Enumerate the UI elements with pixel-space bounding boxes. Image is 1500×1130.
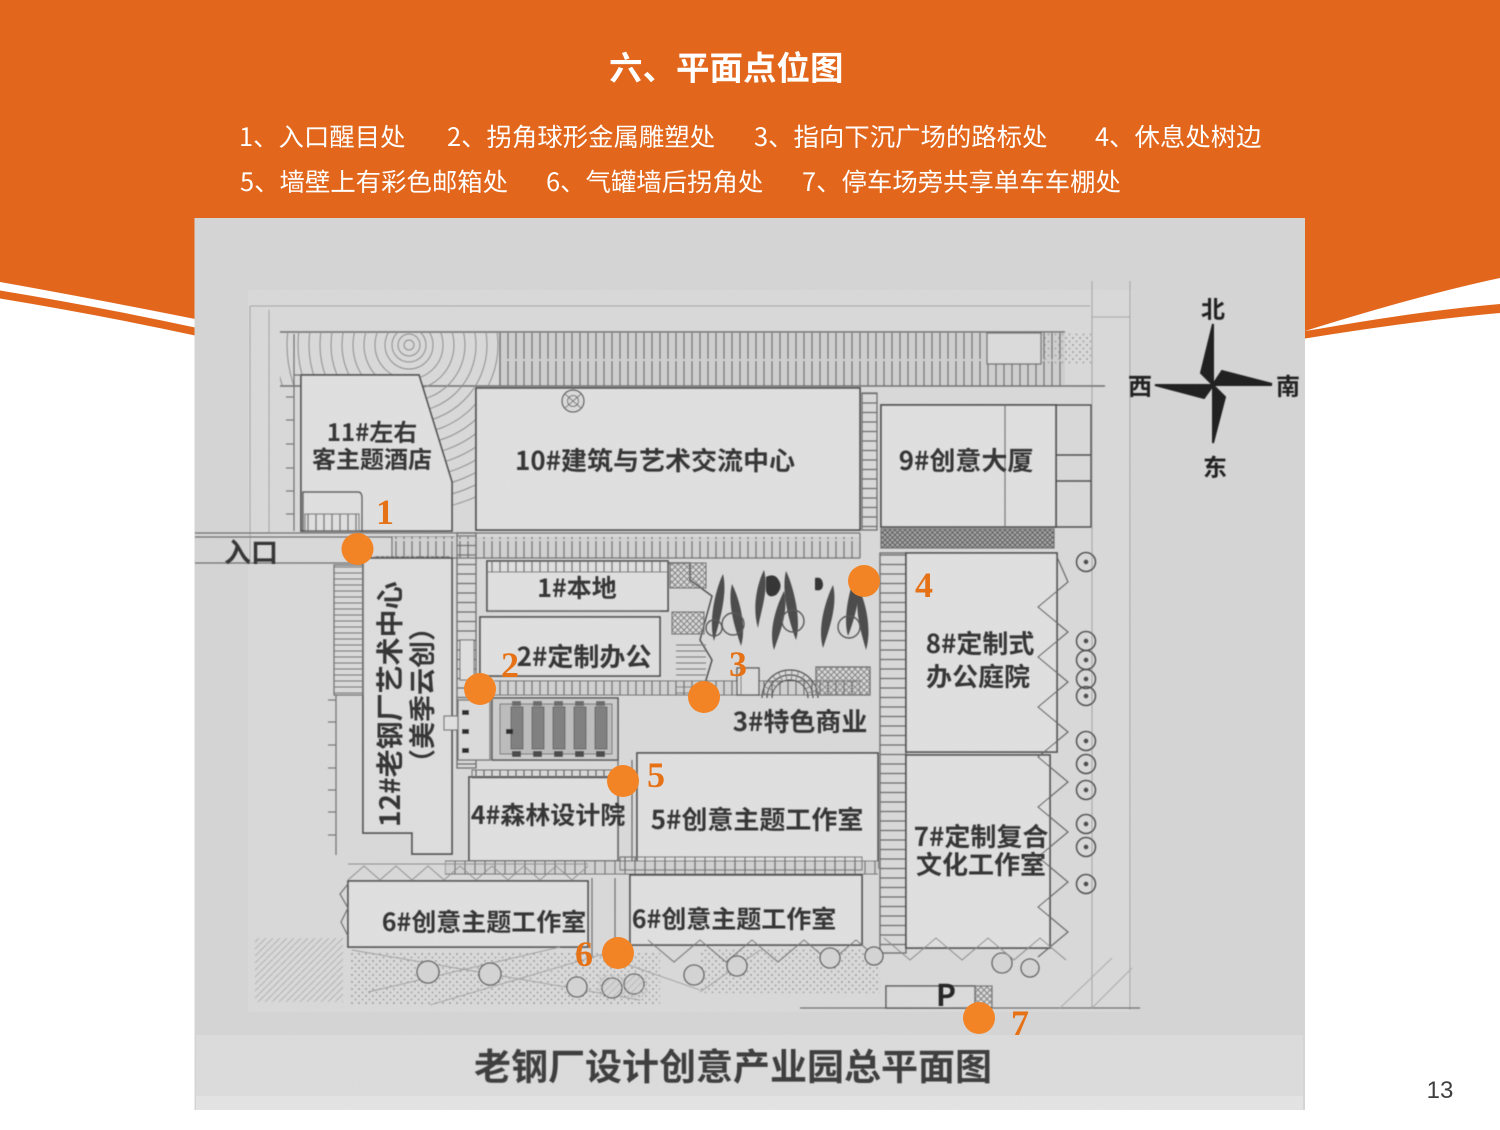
svg-text:13: 13 xyxy=(1427,1077,1454,1104)
